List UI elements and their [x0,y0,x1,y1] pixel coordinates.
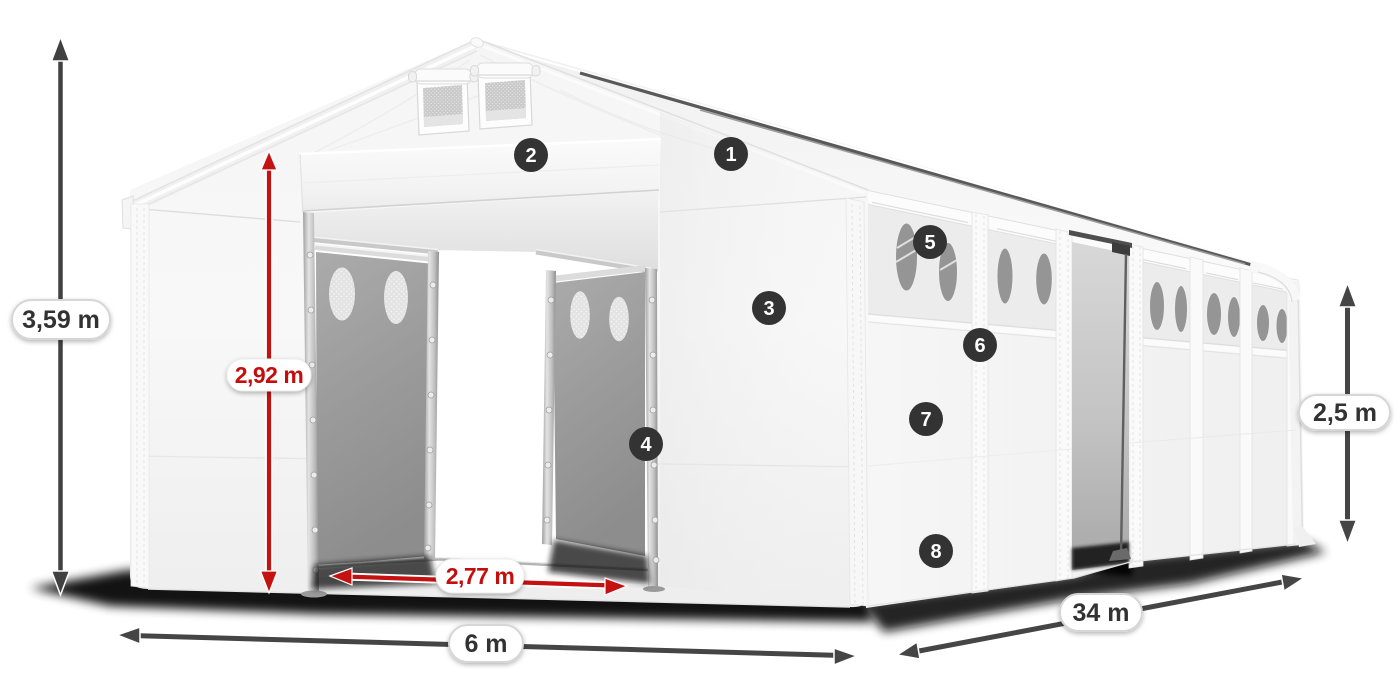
svg-text:2,5 m: 2,5 m [1313,399,1377,427]
svg-text:2,92 m: 2,92 m [235,362,304,388]
svg-text:4: 4 [640,434,652,456]
svg-text:8: 8 [930,541,941,563]
svg-text:2: 2 [525,145,536,167]
svg-text:1: 1 [725,144,736,166]
svg-text:6: 6 [974,335,985,357]
svg-text:34 m: 34 m [1073,599,1130,627]
svg-text:3: 3 [763,298,774,320]
svg-text:2,77 m: 2,77 m [446,563,515,589]
svg-text:6 m: 6 m [464,630,507,658]
svg-text:7: 7 [920,409,931,431]
svg-text:3,59 m: 3,59 m [22,306,100,334]
svg-text:5: 5 [924,232,935,254]
